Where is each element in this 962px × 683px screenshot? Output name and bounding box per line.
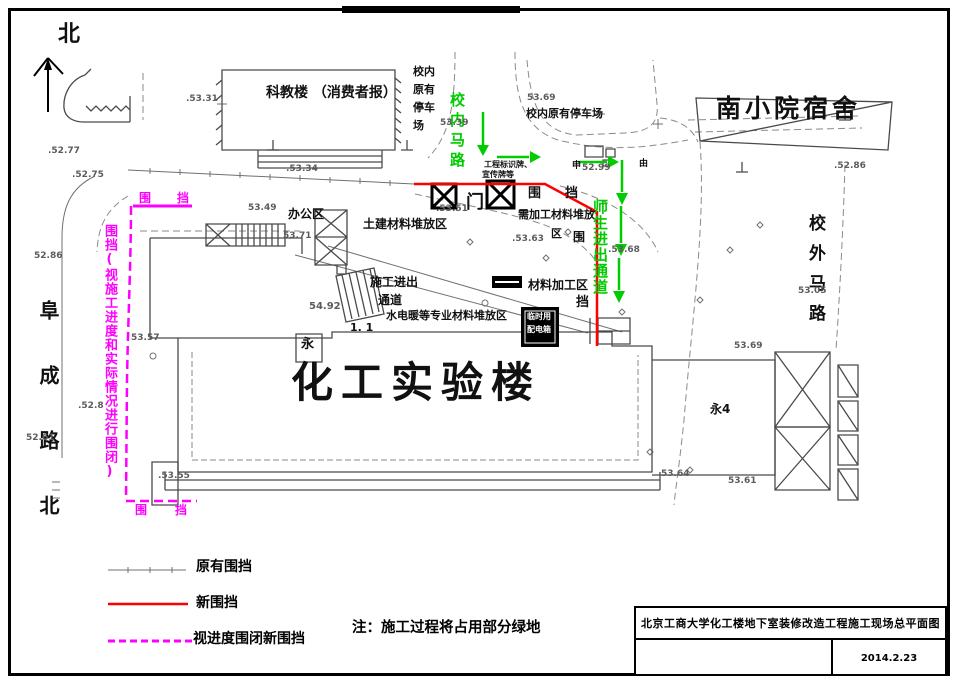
area-to-process-line1: 需加工材料堆放 (518, 209, 595, 220)
building-kejiaolou: 科教楼 （消费者报） (266, 86, 397, 100)
elevation: 53.61 (728, 477, 756, 486)
elevation: 53.71 (283, 232, 311, 241)
elevation: 52.99 (582, 164, 610, 173)
area-office: 办公区 (288, 208, 324, 220)
drawing-title: 北京工商大学化工楼地下室装修改造工程施工现场总平面图 (636, 608, 945, 640)
elevation: 53.39 (440, 119, 468, 128)
magenta-fence-char: 挡 (177, 192, 189, 204)
elevation: .52.77 (48, 147, 80, 156)
legend-existing-fence-label: 原有围挡 (196, 560, 252, 574)
parking-vertical-label: 场 (413, 120, 424, 131)
drawing-date: 2014.2.23 (831, 640, 945, 676)
area-to-process-line2: 区 (551, 228, 562, 239)
elevation: 53.64 (661, 470, 689, 479)
elevation: 53.57 (131, 334, 159, 343)
fence-char: 围 (573, 231, 585, 243)
sign-board-note-line1: 工程标识牌、 (484, 161, 532, 169)
parking-vertical-label: 校内 (413, 66, 435, 77)
fence-char: 挡 (576, 296, 589, 309)
elevation: .52.86 (834, 162, 866, 171)
elevation: .53.51 (436, 205, 468, 214)
power-box-line1: 临时用 (527, 313, 551, 321)
area-mep-materials: 水电暖等专业材料堆放区 (386, 310, 507, 321)
elevation: 52.86 (34, 252, 62, 261)
fence-char: 围 (528, 187, 541, 200)
elevation: .53.34 (286, 165, 318, 174)
magenta-fence-char: 围 (135, 504, 147, 516)
elevation: .53.31 (186, 95, 218, 104)
building-nanxiaoyuan: 南小院宿舍 (716, 96, 861, 121)
title-block: 北京工商大学化工楼地下室装修改造工程施工现场总平面图 2014.2.23 (634, 606, 947, 676)
hydrant-label-4: 永4 (710, 403, 730, 415)
elevation: 53.69 (734, 342, 762, 351)
pole-mark: 申 (572, 162, 581, 171)
pole-mark: 由 (639, 160, 648, 169)
parking-vertical-label: 原有 (413, 84, 435, 95)
elevation: 53.05 (798, 287, 826, 296)
fence-progress-note: 围挡(视施工进度和实际情况进行围闭) (103, 224, 116, 480)
road-xiaowai-malu: 校外马路 (806, 214, 823, 334)
area-material-processing: 材料加工区 (528, 279, 588, 291)
gate-label: 门 (466, 194, 484, 212)
hydrant-label: 永 (301, 338, 314, 351)
elevation: .52.8 (78, 402, 104, 411)
power-box-line2: 配电箱 (527, 326, 551, 334)
elevation: 53.69 (527, 94, 555, 103)
construction-note: 注：施工过程将占用部分绿地 (352, 616, 541, 637)
elevation: 54.92 (309, 302, 341, 312)
elevation: 53.49 (248, 204, 276, 213)
road-xiaonei-malu: 校内马路 (449, 92, 464, 172)
road-fuchenglu-north: 阜成路北 (38, 300, 58, 560)
construction-entrance-line2: 通道 (378, 294, 402, 306)
building-huagong-lab: 化工实验楼 (291, 362, 541, 404)
parking-horizontal-label: 校内原有停车场 (526, 108, 603, 119)
title-block-bottom-row: 2014.2.23 (636, 640, 945, 676)
dim-label: 1. 1 (350, 322, 373, 333)
north-label: 北 (58, 24, 80, 46)
magenta-fence-char: 挡 (175, 504, 187, 516)
legend-new-fence-label: 新围挡 (196, 596, 238, 610)
elevation: .52.75 (72, 171, 104, 180)
elevation: .53.68 (608, 246, 640, 255)
construction-entrance-line1: 施工进出 (370, 276, 418, 288)
fence-char: 挡 (565, 187, 578, 200)
area-civil-materials: 土建材料堆放区 (363, 218, 447, 230)
magenta-fence-char: 围 (139, 192, 151, 204)
parking-vertical-label: 停车 (413, 102, 435, 113)
legend-progress-fence-label: 视进度围闭新围挡 (193, 632, 305, 646)
sign-board-note-line2: 宣传牌等 (482, 171, 514, 179)
elevation: .53.63 (512, 235, 544, 244)
elevation: .53.55 (158, 472, 190, 481)
elevation: 52.61 (26, 434, 54, 443)
